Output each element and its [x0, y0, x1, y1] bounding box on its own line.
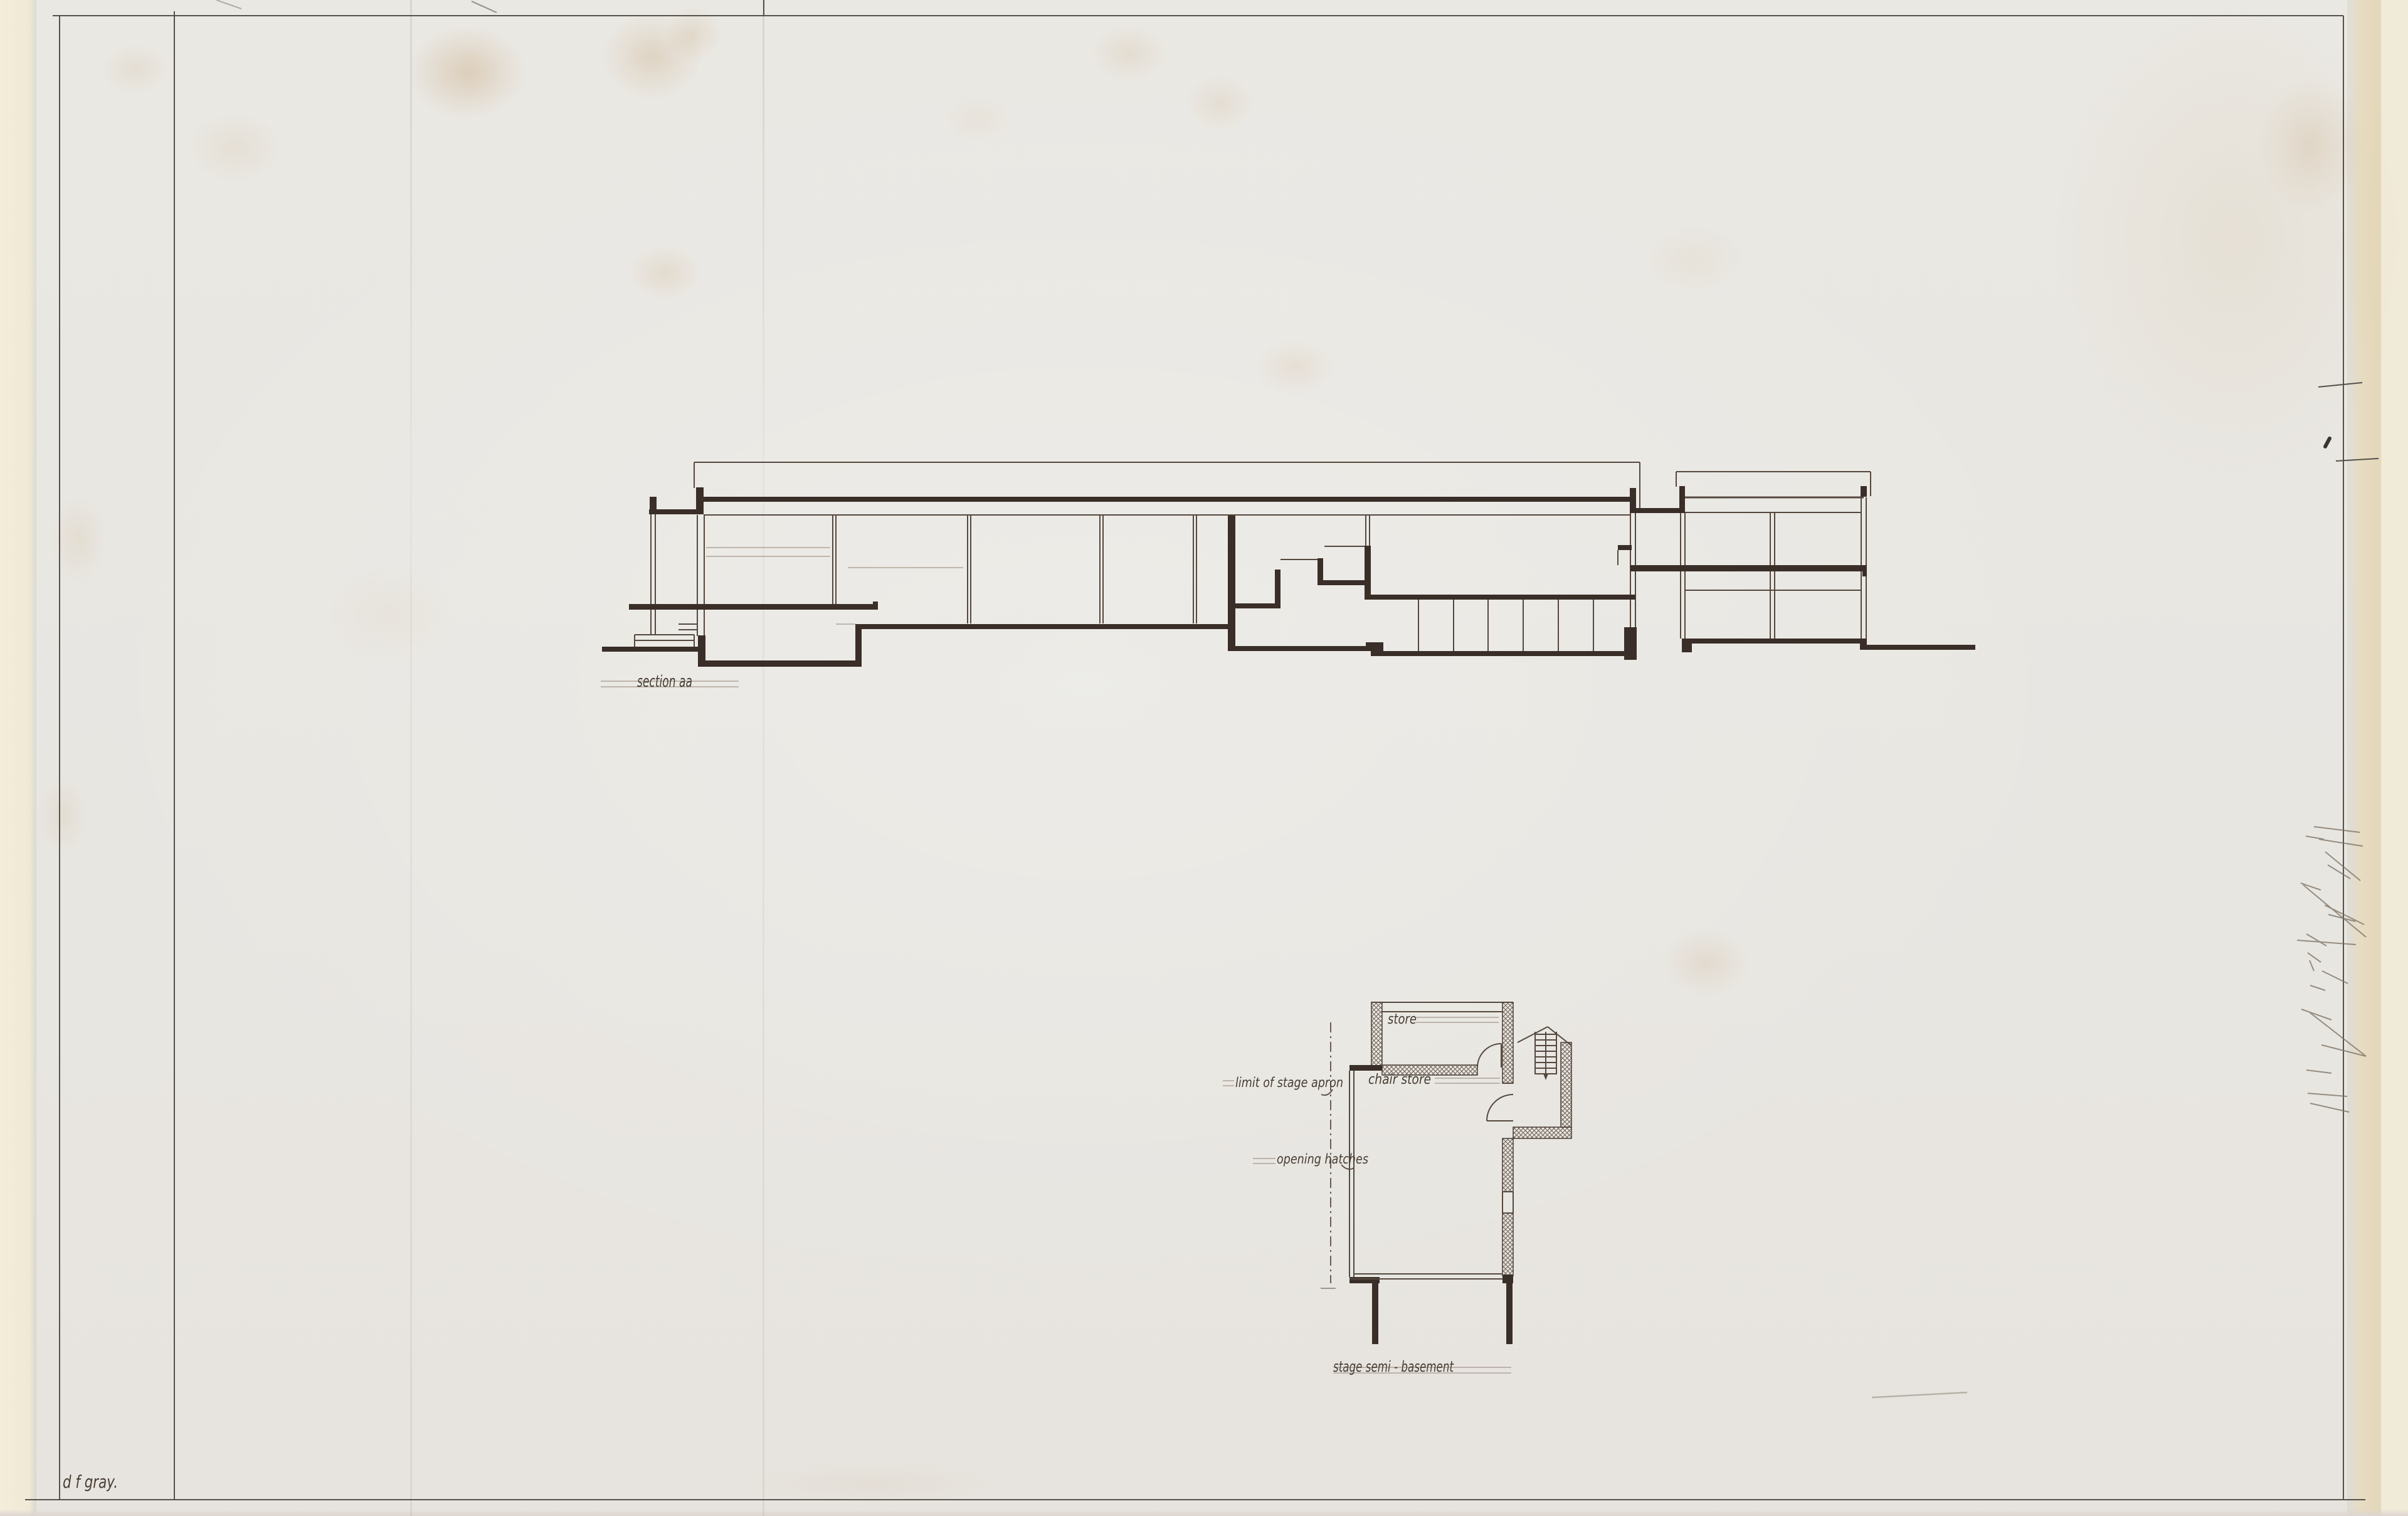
stair-direction-arrow [1543, 1074, 1548, 1080]
pencil-marks [2297, 827, 2366, 1112]
ground-floor-slab [855, 624, 1228, 629]
stage-bottom-left-corner [1349, 1277, 1380, 1283]
door-swing-chair-store [1487, 1095, 1513, 1121]
border-tick-marks [216, 0, 2379, 461]
chair-store-label: chair store [1368, 1072, 1431, 1088]
store-right-wall [1502, 1002, 1513, 1083]
ground-step-block [1366, 642, 1383, 651]
link-mid-floor-slab [1630, 565, 1867, 571]
signature-label: d f gray. [63, 1471, 118, 1492]
left-parapet-cap [649, 509, 704, 514]
outer-right-wall [1561, 1042, 1571, 1127]
under-stage-ground [1371, 651, 1625, 656]
hall-right-parapet [1630, 488, 1636, 509]
pit-floor [702, 660, 862, 667]
raised-floor [629, 604, 878, 610]
corridor-corner-wall [1513, 1127, 1571, 1138]
store-label: store [1388, 1012, 1417, 1027]
stage-bottom-right-corner [1502, 1275, 1513, 1283]
link-roof [1630, 508, 1679, 513]
stage-step-tread-1 [1235, 603, 1279, 608]
pit-right-wall [855, 624, 862, 667]
chair-store-lintel [1349, 1065, 1382, 1071]
section-label-group: section aa [601, 672, 739, 691]
ceiling-beam [704, 497, 1630, 502]
left-ground-line [602, 647, 698, 652]
mid-landing [1618, 545, 1632, 550]
right-wing-wall [1506, 1283, 1513, 1344]
stage-back-wall [1228, 516, 1235, 651]
section-title: section aa [637, 672, 692, 691]
hall-right-foundation [1624, 627, 1637, 660]
plan-title: stage semi - basement [1333, 1358, 1454, 1376]
plan-solid-walls [1349, 1065, 1513, 1344]
left-parapet [696, 487, 704, 509]
left-screen-wall-head [650, 497, 657, 509]
right-block-left-parapet [1679, 486, 1685, 513]
section-drawing: section aa [601, 462, 1975, 691]
left-wing-wall [1372, 1283, 1378, 1344]
plan-hatched-walls [1371, 1002, 1571, 1276]
section-solid-structure [602, 486, 1975, 667]
stage-right-wall-upper [1502, 1138, 1513, 1192]
opening-hatches-label: opening hatches [1277, 1152, 1368, 1167]
right-ground-line [1862, 645, 1975, 650]
pit-ground [1228, 646, 1366, 651]
stage-step-tread-2 [1321, 580, 1365, 585]
stage-right-wall-lower [1502, 1213, 1513, 1276]
right-block-right-parapet [1861, 486, 1867, 497]
sheet-border [25, 11, 2365, 1500]
door-swing-store [1477, 1044, 1501, 1068]
stage-front-riser [1365, 546, 1371, 600]
drawing-sheet: section aa [0, 0, 2408, 1516]
pencil-smudge [1872, 1392, 1967, 1397]
stage-apron-label: limit of stage apron [1235, 1075, 1343, 1090]
stage-step-riser-1 [1275, 570, 1281, 608]
right-block-ground-slab [1682, 639, 1864, 644]
section-faint-lines [706, 548, 963, 624]
raised-floor-upstand [873, 602, 878, 610]
stage-step-riser-2 [1318, 558, 1323, 585]
stage-floor-slab [1365, 595, 1635, 600]
plan-drawing: store chair store limit of stage apron o… [1223, 1002, 1967, 1397]
store-left-wall [1371, 1002, 1382, 1069]
drawing-svg: section aa [0, 0, 2408, 1516]
